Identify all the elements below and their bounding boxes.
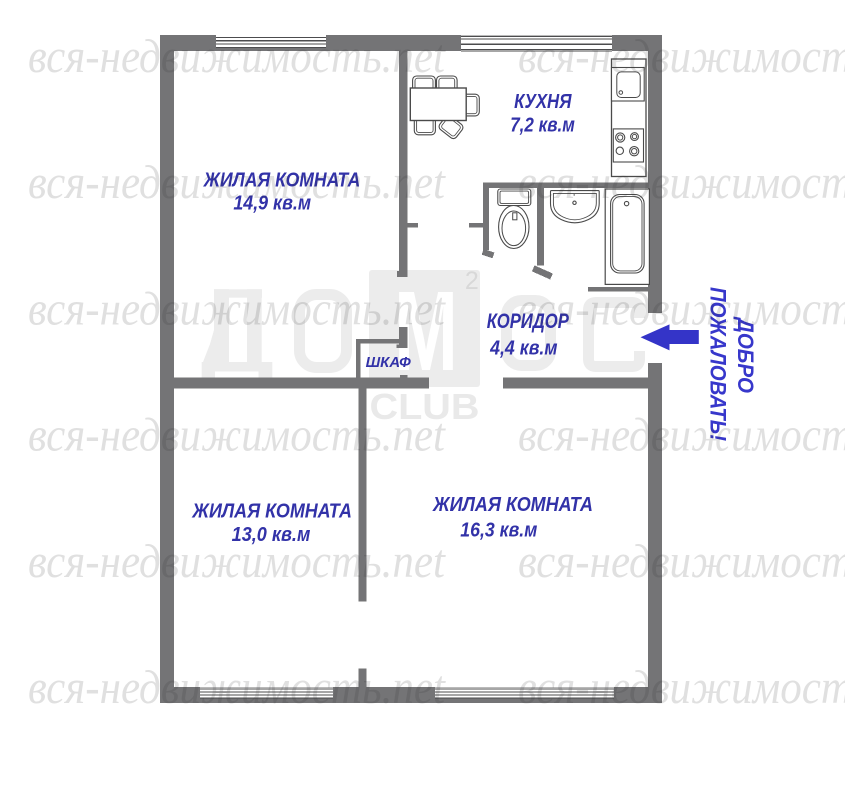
svg-text:вся-недвижимость.net: вся-недвижимость.net <box>518 30 845 83</box>
svg-text:вся-недвижимость.net: вся-недвижимость.net <box>518 156 845 209</box>
svg-text:вся-недвижимость.net: вся-недвижимость.net <box>28 661 446 714</box>
svg-text:КУХНЯ: КУХНЯ <box>514 91 572 113</box>
svg-text:ШКАФ: ШКАФ <box>366 354 411 371</box>
svg-text:ЖИЛАЯ КОМНАТА: ЖИЛАЯ КОМНАТА <box>432 494 593 516</box>
svg-text:4,4 кв.м: 4,4 кв.м <box>489 337 557 359</box>
svg-text:вся-недвижимость.net: вся-недвижимость.net <box>518 409 845 462</box>
svg-text:7,2 кв.м: 7,2 кв.м <box>510 114 575 136</box>
svg-text:вся-недвижимость.net: вся-недвижимость.net <box>28 409 446 462</box>
svg-text:вся-недвижимость.net: вся-недвижимость.net <box>518 282 845 335</box>
svg-text:ЖИЛАЯ КОМНАТА: ЖИЛАЯ КОМНАТА <box>192 501 352 523</box>
svg-text:вся-недвижимость.net: вся-недвижимость.net <box>28 30 446 83</box>
svg-text:вся-недвижимость.net: вся-недвижимость.net <box>518 661 845 714</box>
svg-text:вся-недвижимость.net: вся-недвижимость.net <box>28 282 446 335</box>
svg-text:вся-недвижимость.net: вся-недвижимость.net <box>28 156 446 209</box>
svg-text:вся-недвижимость.net: вся-недвижимость.net <box>28 535 446 588</box>
svg-text:вся-недвижимость.net: вся-недвижимость.net <box>518 535 845 588</box>
svg-text:2: 2 <box>465 267 479 295</box>
